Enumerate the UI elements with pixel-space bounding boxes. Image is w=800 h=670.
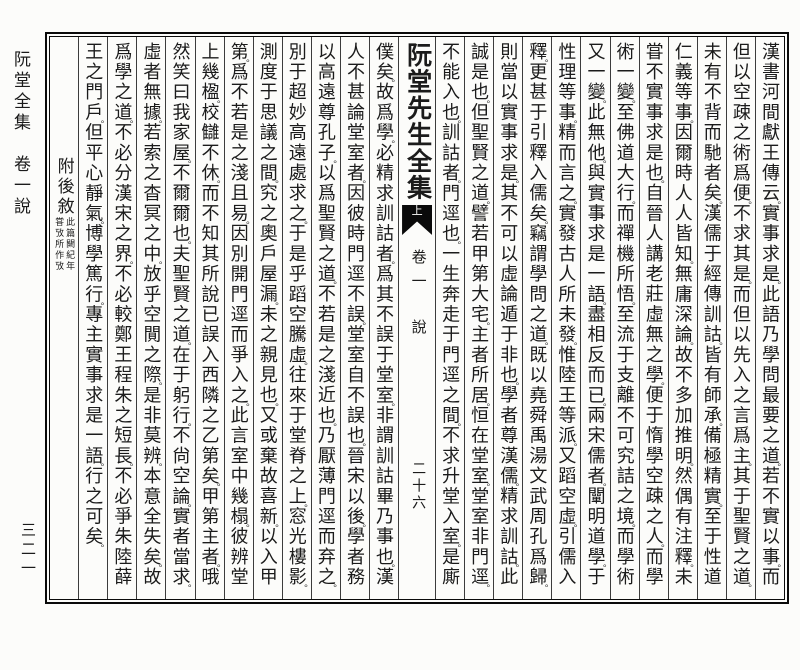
text-column: 但以空疎之術爲便。不求其是。而但以先入之言爲主。其于聖賢之道。	[726, 37, 755, 599]
text-column-content: 上幾楹。校讎不休。而不知其所說已誤入西隣之乙第矣。甲第主者。哦	[201, 37, 219, 587]
section-label: 說	[410, 319, 425, 334]
note-column-right: 此篇闕紀年	[65, 217, 74, 272]
text-column: 甞不實事求是也。自晉人講老莊虛無之學。便于惰學空疎之人。而學	[639, 37, 668, 599]
text-block: 漢書河間獻王傳云。實事求是。此語乃學問最要之道。若不實以事。而但以空疎之術爲便。…	[50, 37, 784, 599]
text-column-content: 然笑曰我家屋。不爾爾也。夫聖賢之道。在于躬行。不尙空論。實者當求。	[171, 37, 189, 587]
text-column-content: 第。爲不若是之淺且易。因別開門逕而爭入之。此言室中幾榻。彼辨堂	[230, 37, 248, 587]
volume-label: 卷一	[410, 249, 425, 297]
text-column: 性理等事。精而言之。實發古人所未發。惟陸王等派。又蹈空虛。引儒入	[551, 37, 580, 599]
text-column: 人不甚論堂室者。因彼時門逕不誤。堂室自不誤也。晉宋以後。學者務	[340, 37, 369, 599]
page-frame-inner-rule: 漢書河間獻王傳云。實事求是。此語乃學問最要之道。若不實以事。而但以空疎之術爲便。…	[49, 36, 785, 600]
text-column-content: 爲學之道。不必分漢宋之界。不必較鄭王程朱之短長。不必爭朱陸薛	[113, 37, 131, 587]
appendix-small-note: 此篇闕紀年 甞攷所作攷	[54, 217, 74, 272]
text-column: 別于超妙高遠處求之。于是乎蹈空騰虛。往來于堂脊之上。窓光樓影。	[282, 37, 311, 599]
text-column-content: 性理等事。精而言之。實發古人所未發。惟陸王等派。又蹈空虛。引儒入	[557, 37, 575, 587]
text-column: 測度于思議之間。究之奧戶屋漏。未之親見也。又或棄故喜新。以入甲	[253, 37, 282, 599]
text-column-content: 又一變。此無他。與實事求是一語。盡相反而已。兩宋儒者。闡明道學。于	[586, 37, 604, 587]
text-column-content: 未有不背而馳者矣。漢儒于經傳訓詁。皆有師承。備極精實。至于性道	[703, 37, 721, 587]
text-column: 虛者無據。若索之杳冥之中。放乎空閴之際。是非莫辨。本意全失矣。故	[136, 37, 165, 599]
text-column: 術一變。至佛道大行。而禪機所悟。至流于支離不可究詰之境。而學術	[610, 37, 639, 599]
text-column-content: 甞不實事求是也。自晉人講老莊虛無之學。便于惰學空疎之人。而學	[645, 37, 663, 587]
text-column: 未有不背而馳者矣。漢儒于經傳訓詁。皆有師承。備極精實。至于性道	[697, 37, 726, 599]
book-title: 阮堂先生全集	[405, 42, 430, 201]
text-column-content: 漢書河間獻王傳云。實事求是。此語乃學問最要之道。若不實以事。而	[761, 37, 779, 587]
page-frame: 漢書河間獻王傳云。實事求是。此語乃學問最要之道。若不實以事。而但以空疎之術爲便。…	[45, 32, 789, 604]
outer-page-number: 三二一	[19, 522, 34, 579]
page-center-column: 阮堂先生全集 上 卷一 說 二十六	[398, 37, 435, 599]
fishtail-volume-mark: 上	[412, 206, 423, 217]
text-column-content: 誠是也。但聖賢之道。譬若甲第大宅。主者所居。恒在堂室。堂室非門逕。	[470, 37, 488, 587]
text-column: 僕矣。故爲學。必精求訓詁者。爲其不誤于堂室。非謂訓詁畢乃事也。漢	[369, 37, 398, 599]
text-column-content: 但以空疎之術爲便。不求其是。而但以先入之言爲主。其于聖賢之道。	[732, 37, 750, 587]
text-column-content: 王之門戶。但平心靜氣。博學篤行。專主實事求是一語。行之可矣。	[84, 37, 102, 547]
text-column: 上幾楹。校讎不休。而不知其所說已誤入西隣之乙第矣。甲第主者。哦	[195, 37, 224, 599]
text-column: 釋。更甚于引釋入儒矣。竊謂學問之道。既以堯舜禹湯文武周孔爲歸。	[522, 37, 551, 599]
appendix-column: 附後敘 此篇闕紀年 甞攷所作攷	[50, 37, 78, 599]
text-column-content: 以高遠尊孔子。以爲聖賢之道。不若是之淺近也。乃厭薄門逕而弃之。	[317, 37, 335, 587]
folio-page-number: 二十六	[410, 461, 424, 512]
text-column: 則當以實事求是。其不可以虛論遁于非也。學者尊漢儒。精求訓詁。此	[493, 37, 522, 599]
appendix-heading: 附後敘	[56, 157, 73, 217]
text-column: 漢書河間獻王傳云。實事求是。此語乃學問最要之道。若不實以事。而	[755, 37, 784, 599]
text-column: 第。爲不若是之淺且易。因別開門逕而爭入之。此言室中幾榻。彼辨堂	[224, 37, 253, 599]
text-column: 王之門戶。但平心靜氣。博學篤行。專主實事求是一語。行之可矣。	[78, 37, 107, 599]
book-page: 阮堂全集 卷一說 三二一 漢書河間獻王傳云。實事求是。此語乃學問最要之道。若不實…	[0, 0, 800, 670]
text-column-content: 別于超妙高遠處求之。于是乎蹈空騰虛。往來于堂脊之上。窓光樓影。	[288, 37, 306, 587]
text-column: 以高遠尊孔子。以爲聖賢之道。不若是之淺近也。乃厭薄門逕而弃之。	[311, 37, 340, 599]
text-column-content: 僕矣。故爲學。必精求訓詁者。爲其不誤于堂室。非謂訓詁畢乃事也。漢	[375, 37, 393, 587]
text-column-content: 不能入也。訓詁者。門逕也。一生奔走于門逕之間。不求升堂入室。是廝	[441, 37, 459, 587]
note-column-left: 甞攷所作攷	[54, 217, 63, 272]
text-column: 誠是也。但聖賢之道。譬若甲第大宅。主者所居。恒在堂室。堂室非門逕。	[464, 37, 493, 599]
text-column-content: 術一變。至佛道大行。而禪機所悟。至流于支離不可究詰之境。而學術	[616, 37, 634, 587]
text-column: 然笑曰我家屋。不爾爾也。夫聖賢之道。在于躬行。不尙空論。實者當求。	[165, 37, 194, 599]
text-column: 不能入也。訓詁者。門逕也。一生奔走于門逕之間。不求升堂入室。是廝	[435, 37, 464, 599]
spine-title: 阮堂全集 卷一說	[12, 50, 29, 218]
text-column: 又一變。此無他。與實事求是一語。盡相反而已。兩宋儒者。闡明道學。于	[580, 37, 609, 599]
text-column-content: 人不甚論堂室者。因彼時門逕不誤。堂室自不誤也。晉宋以後。學者務	[346, 37, 364, 587]
text-column: 仁義等事。因爾時人人皆知。無庸深論。故不多加推明。然偶有注釋。未	[668, 37, 697, 599]
text-column: 爲學之道。不必分漢宋之界。不必較鄭王程朱之短長。不必爭朱陸薛	[107, 37, 136, 599]
text-column-content: 則當以實事求是。其不可以虛論遁于非也。學者尊漢儒。精求訓詁。此	[499, 37, 517, 587]
text-column-content: 虛者無據。若索之杳冥之中。放乎空閴之際。是非莫辨。本意全失矣。故	[142, 37, 160, 587]
text-column-content: 測度于思議之間。究之奧戶屋漏。未之親見也。又或棄故喜新。以入甲	[259, 37, 277, 587]
text-column-content: 釋。更甚于引釋入儒矣。竊謂學問之道。既以堯舜禹湯文武周孔爲歸。	[528, 37, 546, 587]
text-column-content: 仁義等事。因爾時人人皆知。無庸深論。故不多加推明。然偶有注釋。未	[674, 37, 692, 587]
